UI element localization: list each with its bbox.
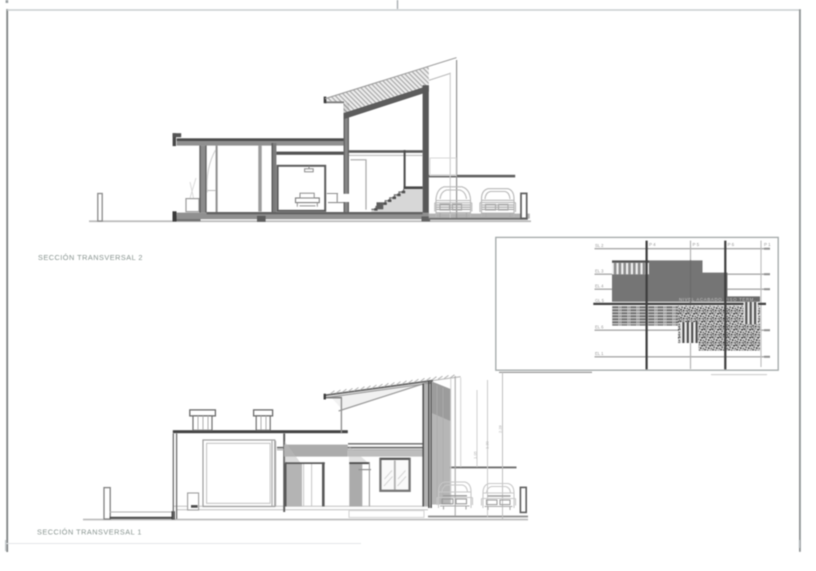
svg-text:1.05: 1.05 xyxy=(473,450,478,459)
svg-text:EL 3: EL 3 xyxy=(595,269,604,274)
svg-text:SECCIÓN TRANSVERSAL 1: SECCIÓN TRANSVERSAL 1 xyxy=(37,528,142,537)
svg-text:P 4: P 4 xyxy=(649,242,656,247)
svg-text:GL 5: GL 5 xyxy=(595,298,605,303)
svg-text:EL 1: EL 1 xyxy=(595,351,604,356)
svg-text:P 5: P 5 xyxy=(693,242,700,247)
svg-text:2.28: 2.28 xyxy=(498,424,503,433)
svg-text:EL 4: EL 4 xyxy=(595,284,604,289)
svg-text:P 6: P 6 xyxy=(728,242,735,247)
svg-text:P 1: P 1 xyxy=(764,242,771,247)
svg-text:SECCIÓN TRANSVERSAL 2: SECCIÓN TRANSVERSAL 2 xyxy=(38,253,143,262)
svg-text:SL 2: SL 2 xyxy=(595,243,604,248)
svg-text:1.30: 1.30 xyxy=(485,440,490,449)
svg-text:EL 6: EL 6 xyxy=(595,325,604,330)
